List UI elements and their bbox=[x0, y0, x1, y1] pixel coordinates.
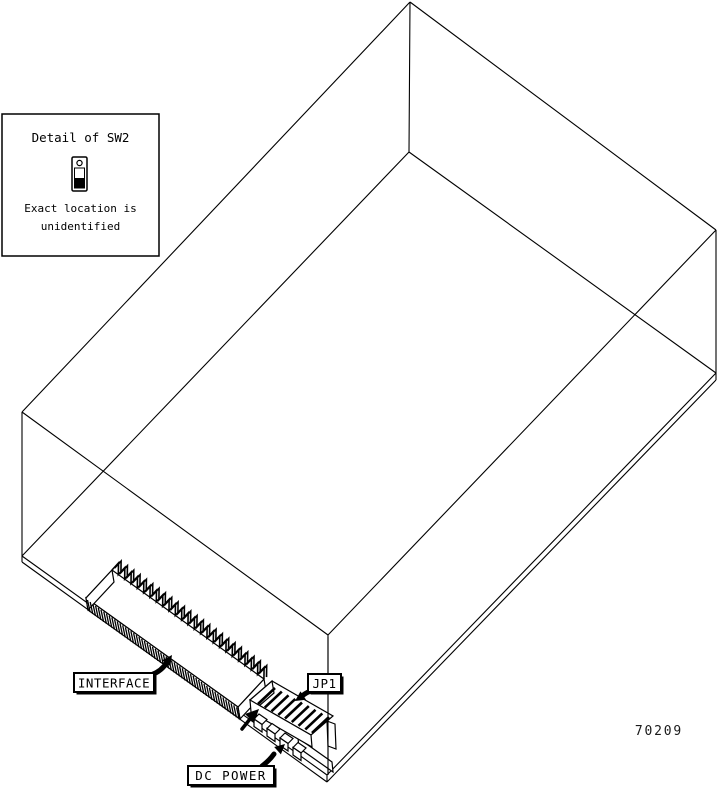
callout-jp1: JP1 bbox=[295, 674, 344, 701]
detail-box-note-line2: unidentified bbox=[41, 220, 120, 233]
dc-power-connector bbox=[250, 681, 336, 772]
indicator-arrow-tail bbox=[242, 719, 250, 729]
jp1-label: JP1 bbox=[312, 676, 336, 691]
detail-box-note-line1: Exact location is bbox=[24, 202, 137, 215]
sw2-detail-box: Detail of SW2 Exact location is unidenti… bbox=[2, 114, 159, 256]
callout-dc-power: DC POWER bbox=[188, 744, 285, 788]
detail-box-title: Detail of SW2 bbox=[32, 130, 130, 145]
technical-diagram: INTERFACE JP1 DC POWER Detail of SW2 Exa… bbox=[0, 0, 719, 789]
toggle-switch-icon bbox=[72, 157, 87, 191]
interface-connector bbox=[86, 561, 267, 719]
dc-power-label: DC POWER bbox=[195, 768, 266, 783]
interface-label: INTERFACE bbox=[78, 676, 150, 691]
drive-isometric-figure: INTERFACE JP1 DC POWER Detail of SW2 Exa… bbox=[0, 0, 719, 789]
switch-indicator-dot bbox=[77, 160, 82, 165]
dc-power-callout-tail bbox=[262, 754, 274, 766]
switch-lever bbox=[75, 178, 85, 188]
figure-number: 70209 bbox=[635, 724, 683, 739]
